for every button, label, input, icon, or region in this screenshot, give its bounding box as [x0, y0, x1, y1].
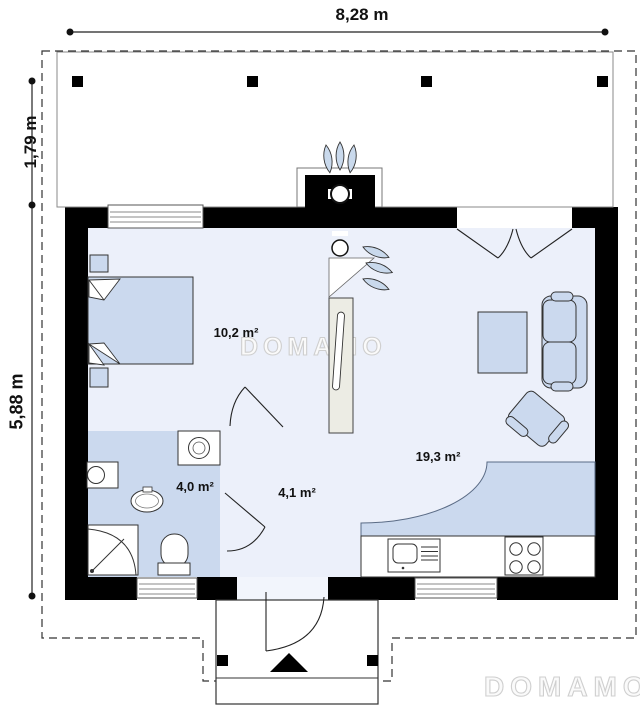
- flame-icon: [336, 142, 344, 170]
- bedroom-furniture: [88, 255, 193, 387]
- window-kitchen: [415, 578, 497, 598]
- terrace-door-right-swing: [516, 229, 531, 258]
- nightstand: [90, 368, 108, 387]
- kitchen-appliances: [388, 537, 543, 575]
- bathroom-door: [225, 493, 265, 527]
- dim-label-terrace: 1,79 m: [21, 107, 41, 177]
- sofa-cushion: [543, 342, 576, 384]
- coffee-table: [478, 312, 527, 373]
- kitchen-sink: [393, 544, 417, 563]
- bedroom-door: [245, 387, 283, 427]
- plan-detail-layer: [0, 0, 640, 706]
- floor-plan: DOMAMO: [0, 0, 640, 706]
- terrace-door-left: [457, 229, 498, 258]
- flue-pipe-icon: [331, 185, 349, 203]
- window-bathroom: [137, 578, 197, 598]
- armchair: [503, 389, 571, 456]
- room-label-bathroom: 4,0 m²: [170, 479, 220, 494]
- dim-label-house: 5,88 m: [7, 362, 28, 442]
- flue-vent: [332, 231, 348, 236]
- room-label-living: 19,3 m²: [413, 449, 463, 464]
- bathroom-door-swing: [227, 527, 265, 551]
- shower-head-icon: [90, 569, 94, 573]
- toilet-tank: [158, 563, 190, 575]
- entrance-arrow-icon: [270, 653, 308, 672]
- room-label-hall: 4,1 m²: [272, 485, 322, 500]
- flame-icon: [362, 275, 391, 293]
- toilet: [161, 534, 188, 567]
- living-furniture: [478, 292, 587, 456]
- porch-details: [217, 653, 378, 672]
- nightstand: [90, 255, 108, 272]
- doors: [225, 229, 572, 651]
- flue-pipe-icon: [332, 240, 348, 256]
- post: [217, 655, 228, 666]
- sofa-armrest: [551, 292, 573, 301]
- watermark-corner: DOMAMO: [484, 671, 640, 703]
- entry-door-swing: [266, 597, 324, 651]
- room-label-bedroom: 10,2 m²: [211, 325, 261, 340]
- sofa-cushion: [543, 300, 576, 342]
- post: [367, 655, 378, 666]
- sink-tap-icon: [143, 487, 152, 492]
- terrace-door-right: [531, 229, 572, 258]
- terrace-door-left-swing: [498, 229, 513, 258]
- sofa-armrest: [551, 382, 573, 391]
- bedroom-door-swing: [230, 387, 245, 426]
- bathroom-fixtures: [87, 431, 220, 575]
- dim-label-width: 8,28 m: [322, 5, 402, 25]
